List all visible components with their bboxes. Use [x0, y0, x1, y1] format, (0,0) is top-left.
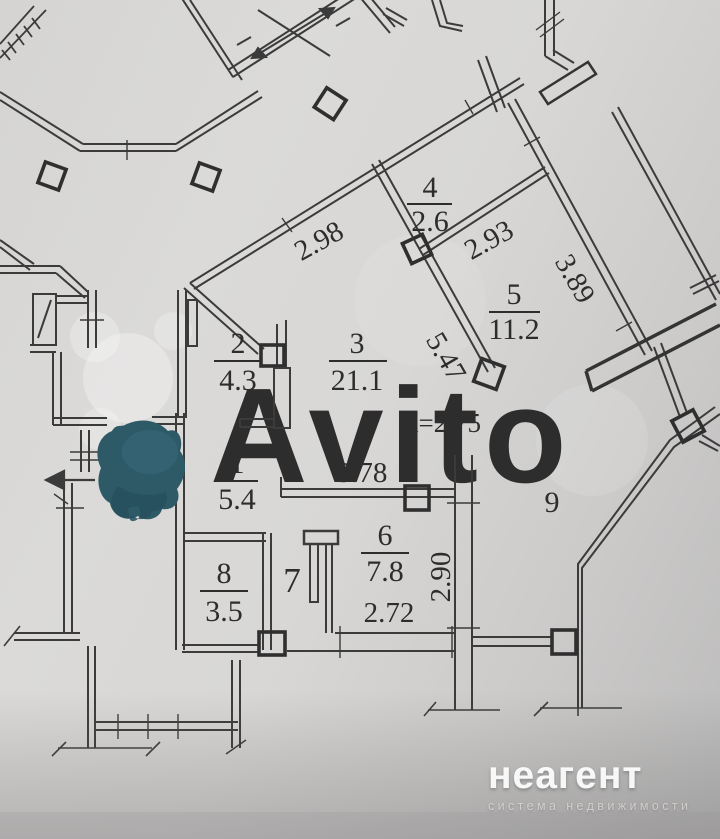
ceiling-height-label: h=2.75	[405, 408, 481, 438]
neagent-logo-text: неагент	[488, 756, 698, 797]
floor-plan-drawing: Avito	[0, 0, 720, 839]
room-8-area: 3.5	[205, 595, 243, 628]
dim-290-label: 2.90	[425, 552, 457, 603]
neagent-logo-tagline: система недвижимости	[488, 800, 698, 813]
room-3-number: 3	[350, 327, 365, 360]
room-5-number: 5	[507, 278, 522, 311]
niche-slash	[38, 300, 51, 338]
room-2-label: 2 4.3	[214, 327, 260, 397]
room-6-area: 7.8	[366, 555, 404, 588]
room-8-number: 8	[217, 557, 232, 590]
room-5-area: 11.2	[488, 313, 539, 346]
floorplan-photo: Avito	[0, 0, 720, 839]
column-marker	[314, 88, 346, 120]
elevator-x-icon	[237, 8, 350, 58]
room-1-area: 5.4	[218, 483, 256, 516]
room-6-label: 6 7.8	[361, 519, 409, 588]
hatched-wall	[0, 6, 46, 60]
room-2-area: 4.3	[219, 364, 257, 397]
room-9-number: 9	[545, 486, 560, 519]
entry-door-block	[540, 62, 596, 104]
room-6-number: 6	[378, 519, 393, 552]
dim-378-label: 3.78	[337, 457, 388, 489]
room-1-number: 1	[230, 447, 245, 480]
column-marker	[192, 163, 220, 191]
room-2-number: 2	[231, 327, 246, 360]
neagent-logo: неагент система недвижимости	[488, 756, 698, 813]
entrance-arrow-icon	[46, 471, 95, 489]
room-7-number: 7	[283, 561, 301, 600]
dim-272-label: 2.72	[364, 597, 415, 629]
room-4-number: 4	[423, 171, 438, 204]
redaction-scribble	[97, 420, 185, 521]
room-8-label: 8 3.5	[200, 557, 248, 628]
dim-298-label: 2.98	[289, 215, 349, 268]
thick-wall-band	[586, 304, 720, 391]
door-pocket	[310, 544, 318, 602]
column-marker	[552, 630, 576, 654]
door-pocket	[304, 531, 338, 544]
column-marker	[38, 162, 66, 190]
room-5-label: 5 11.2	[488, 278, 540, 346]
room-3-area: 21.1	[331, 364, 384, 397]
room-4-area: 2.6	[411, 205, 449, 238]
room-4-label: 4 2.6	[407, 171, 452, 238]
